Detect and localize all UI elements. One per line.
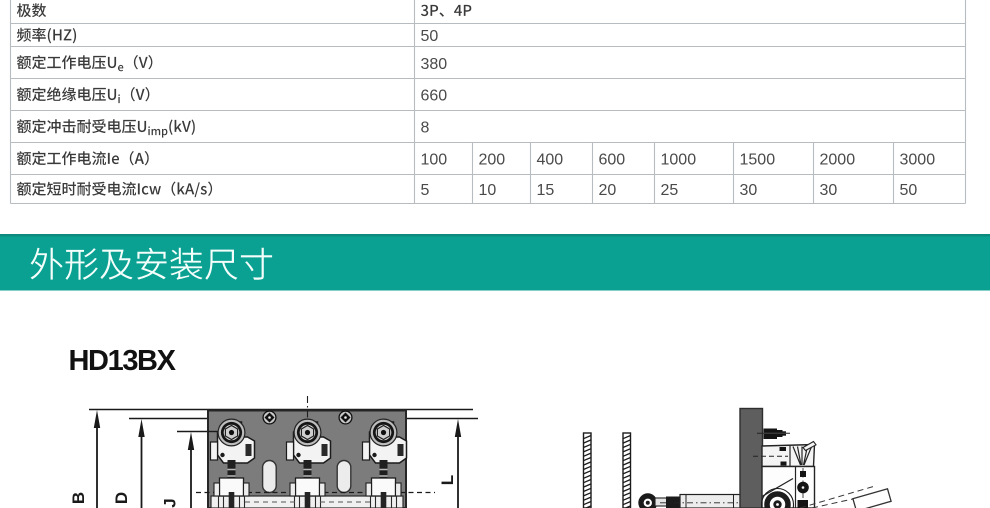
- svg-text:1500: 1500: [740, 152, 776, 169]
- svg-text:20: 20: [599, 182, 617, 199]
- svg-text:3000: 3000: [900, 152, 936, 169]
- svg-text:660: 660: [421, 88, 448, 105]
- svg-text:10: 10: [479, 182, 497, 199]
- svg-text:L: L: [438, 475, 457, 485]
- svg-text:15: 15: [537, 182, 555, 199]
- svg-text:600: 600: [599, 152, 626, 169]
- svg-text:5: 5: [421, 182, 430, 199]
- svg-text:50: 50: [421, 28, 439, 45]
- svg-text:J: J: [161, 498, 180, 507]
- svg-text:380: 380: [421, 56, 448, 73]
- svg-text:25: 25: [661, 182, 679, 199]
- svg-text:30: 30: [820, 182, 838, 199]
- svg-text:100: 100: [421, 152, 448, 169]
- svg-text:8: 8: [421, 120, 430, 137]
- svg-text:50: 50: [900, 182, 918, 199]
- svg-text:400: 400: [537, 152, 564, 169]
- svg-text:2000: 2000: [820, 152, 856, 169]
- svg-text:1000: 1000: [661, 152, 697, 169]
- svg-text:B: B: [69, 492, 88, 504]
- svg-text:30: 30: [740, 182, 758, 199]
- svg-text:200: 200: [479, 152, 506, 169]
- svg-text:D: D: [112, 492, 131, 504]
- svg-text:HD13BX: HD13BX: [69, 345, 177, 377]
